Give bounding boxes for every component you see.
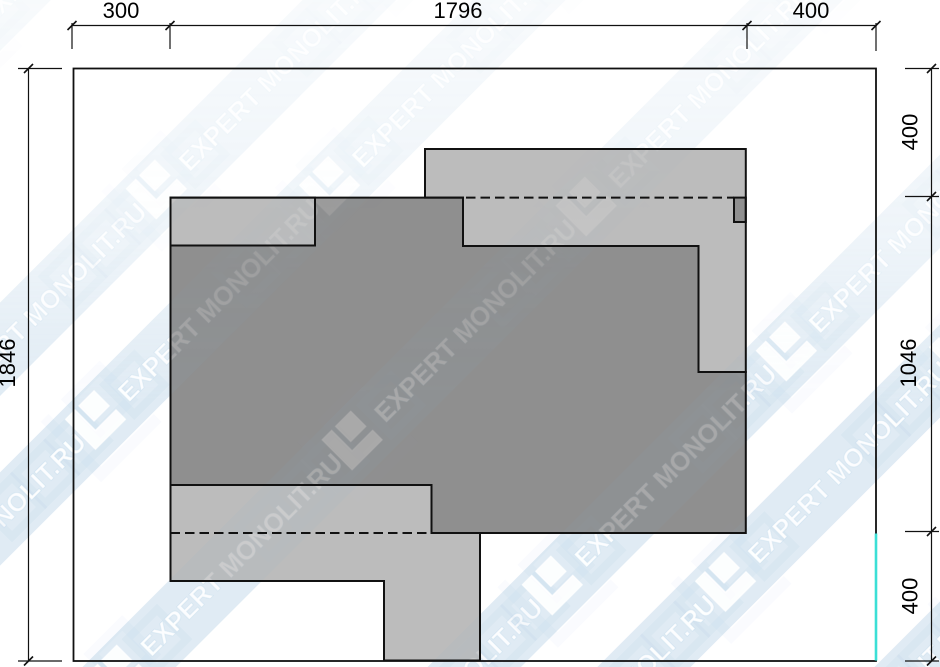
svg-text:300: 300 xyxy=(103,0,140,23)
svg-text:1046: 1046 xyxy=(896,339,921,388)
svg-text:400: 400 xyxy=(793,0,830,23)
svg-text:400: 400 xyxy=(898,114,923,151)
svg-text:400: 400 xyxy=(898,578,923,615)
svg-text:1846: 1846 xyxy=(0,339,20,388)
svg-text:1796: 1796 xyxy=(434,0,483,23)
